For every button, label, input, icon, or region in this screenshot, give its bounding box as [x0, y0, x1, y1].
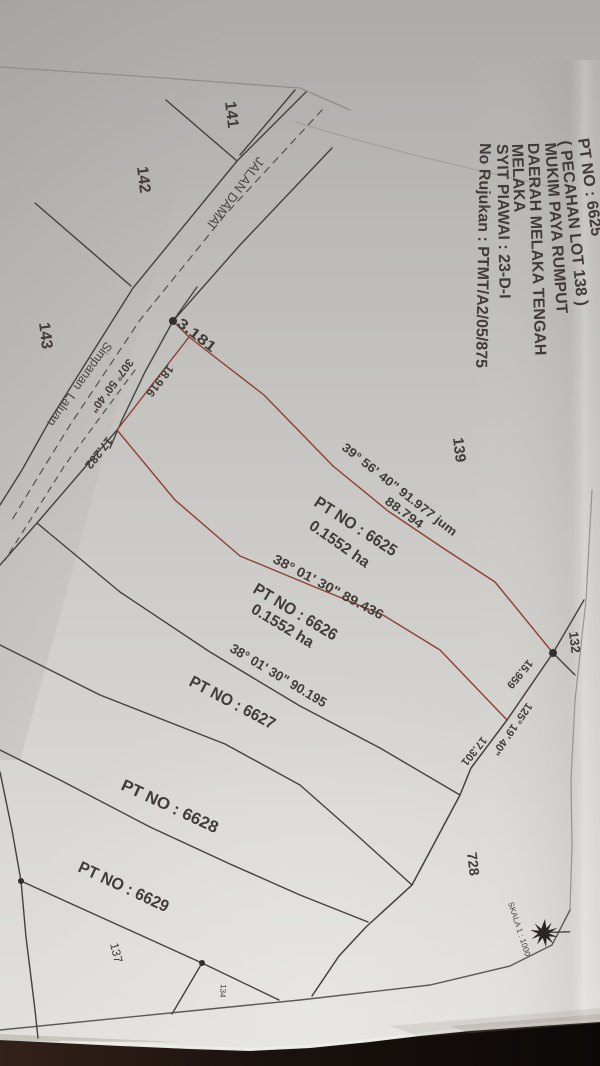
- svg-text:134: 134: [218, 984, 228, 999]
- svg-text:142: 142: [133, 165, 153, 194]
- svg-text:728: 728: [464, 851, 483, 876]
- svg-text:139: 139: [449, 436, 469, 463]
- svg-text:SYIT PIAWAI : 23-D-I: SYIT PIAWAI : 23-D-I: [493, 144, 513, 299]
- svg-text:143: 143: [35, 321, 55, 350]
- svg-text:132: 132: [566, 631, 584, 654]
- svg-text:141: 141: [221, 100, 241, 129]
